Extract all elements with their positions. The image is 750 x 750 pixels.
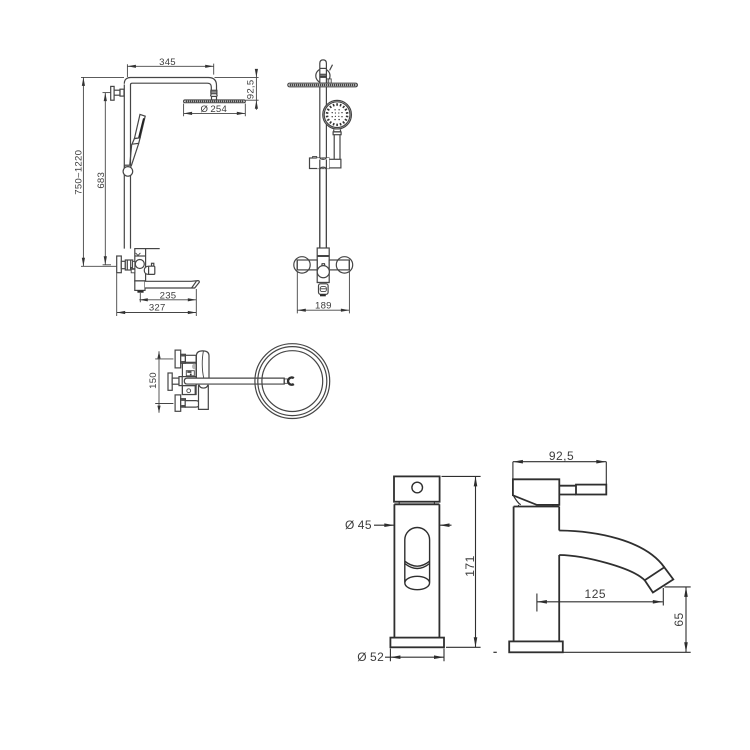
svg-text:171: 171 [463, 555, 477, 577]
svg-text:125: 125 [585, 587, 607, 601]
svg-text:189: 189 [315, 301, 332, 312]
svg-text:92,5: 92,5 [246, 80, 257, 100]
svg-text:327: 327 [149, 302, 166, 313]
svg-text:Ø 254: Ø 254 [200, 104, 227, 115]
svg-text:92,5: 92,5 [549, 449, 574, 463]
svg-text:150: 150 [148, 372, 159, 389]
svg-text:65: 65 [672, 612, 686, 626]
svg-text:Ø 45: Ø 45 [345, 518, 372, 532]
svg-text:750~1220: 750~1220 [73, 150, 84, 195]
svg-text:683: 683 [96, 172, 107, 189]
svg-text:Ø 52: Ø 52 [357, 650, 384, 664]
svg-text:235: 235 [160, 290, 177, 301]
svg-text:345: 345 [159, 57, 176, 68]
